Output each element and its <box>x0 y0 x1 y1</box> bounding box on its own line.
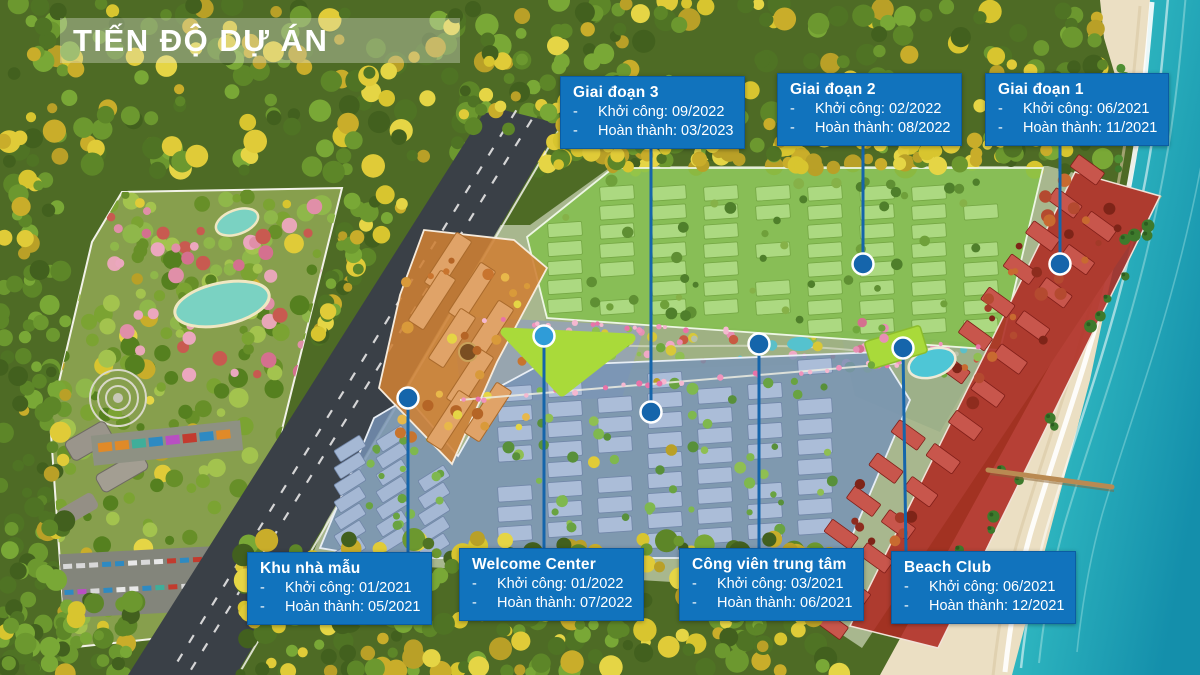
finish-row: -Hoàn thành: 12/2021 <box>904 597 1064 616</box>
bullet-dash: - <box>260 579 285 598</box>
bullet-dash: - <box>260 598 285 617</box>
bullet-dash: - <box>904 597 929 616</box>
bullet-dash: - <box>904 578 929 597</box>
callout-phase-2: Giai đoạn 2 -Khởi công: 02/2022 -Hoàn th… <box>777 73 962 146</box>
bullet-dash: - <box>692 575 717 594</box>
finish-date: Hoàn thành: 11/2021 <box>1023 119 1157 138</box>
finish-date: Hoàn thành: 06/2021 <box>717 594 852 613</box>
callout-title: Khu nhà mẫu <box>260 559 420 579</box>
callout-title: Giai đoạn 3 <box>573 83 733 103</box>
start-date: Khởi công: 06/2021 <box>1023 100 1149 119</box>
marker-phase-1 <box>1050 254 1071 275</box>
callout-central-park: Công viên trung tâm -Khởi công: 03/2021 … <box>679 548 864 621</box>
callout-title: Giai đoạn 1 <box>998 80 1157 100</box>
finish-date: Hoàn thành: 08/2022 <box>815 119 950 138</box>
page-title: TIẾN ĐỘ DỰ ÁN <box>60 23 328 59</box>
callout-title: Giai đoạn 2 <box>790 80 950 100</box>
bullet-dash: - <box>573 103 598 122</box>
marker-phase-3 <box>641 402 662 423</box>
start-date: Khởi công: 01/2022 <box>497 575 623 594</box>
callout-phase-3: Giai đoạn 3 -Khởi công: 09/2022 -Hoàn th… <box>560 76 745 149</box>
callout-title: Công viên trung tâm <box>692 555 852 575</box>
start-row: -Khởi công: 09/2022 <box>573 103 733 122</box>
page-title-band: TIẾN ĐỘ DỰ ÁN <box>60 18 460 63</box>
finish-row: -Hoàn thành: 08/2022 <box>790 119 950 138</box>
start-row: -Khởi công: 01/2021 <box>260 579 420 598</box>
bullet-dash: - <box>998 100 1023 119</box>
callout-beach-club: Beach Club -Khởi công: 06/2021 -Hoàn thà… <box>891 551 1076 624</box>
project-progress-slide: TIẾN ĐỘ DỰ ÁN Giai đoạn 3 -Khởi công: 09… <box>0 0 1200 675</box>
marker-beach-club <box>893 338 914 359</box>
start-date: Khởi công: 02/2022 <box>815 100 941 119</box>
bullet-dash: - <box>573 122 598 141</box>
finish-date: Hoàn thành: 05/2021 <box>285 598 420 617</box>
start-row: -Khởi công: 02/2022 <box>790 100 950 119</box>
callout-welcome-center: Welcome Center -Khởi công: 01/2022 -Hoàn… <box>459 548 644 621</box>
start-date: Khởi công: 06/2021 <box>929 578 1055 597</box>
start-row: -Khởi công: 06/2021 <box>904 578 1064 597</box>
finish-date: Hoàn thành: 07/2022 <box>497 594 632 613</box>
finish-row: -Hoàn thành: 03/2023 <box>573 122 733 141</box>
marker-welcome-center <box>534 326 555 347</box>
finish-date: Hoàn thành: 03/2023 <box>598 122 733 141</box>
finish-date: Hoàn thành: 12/2021 <box>929 597 1064 616</box>
bullet-dash: - <box>790 119 815 138</box>
finish-row: -Hoàn thành: 06/2021 <box>692 594 852 613</box>
callout-title: Beach Club <box>904 558 1064 578</box>
start-row: -Khởi công: 01/2022 <box>472 575 632 594</box>
marker-model-homes <box>398 388 419 409</box>
bullet-dash: - <box>692 594 717 613</box>
start-date: Khởi công: 09/2022 <box>598 103 724 122</box>
bullet-dash: - <box>472 594 497 613</box>
start-date: Khởi công: 03/2021 <box>717 575 843 594</box>
start-date: Khởi công: 01/2021 <box>285 579 411 598</box>
marker-phase-2 <box>853 254 874 275</box>
callout-model-homes: Khu nhà mẫu -Khởi công: 01/2021 -Hoàn th… <box>247 552 432 625</box>
callout-title: Welcome Center <box>472 555 632 575</box>
finish-row: -Hoàn thành: 07/2022 <box>472 594 632 613</box>
callout-phase-1: Giai đoạn 1 -Khởi công: 06/2021 -Hoàn th… <box>985 73 1169 146</box>
marker-central-park <box>749 334 770 355</box>
start-row: -Khởi công: 06/2021 <box>998 100 1157 119</box>
bullet-dash: - <box>998 119 1023 138</box>
bullet-dash: - <box>472 575 497 594</box>
start-row: -Khởi công: 03/2021 <box>692 575 852 594</box>
finish-row: -Hoàn thành: 05/2021 <box>260 598 420 617</box>
finish-row: -Hoàn thành: 11/2021 <box>998 119 1157 138</box>
bullet-dash: - <box>790 100 815 119</box>
